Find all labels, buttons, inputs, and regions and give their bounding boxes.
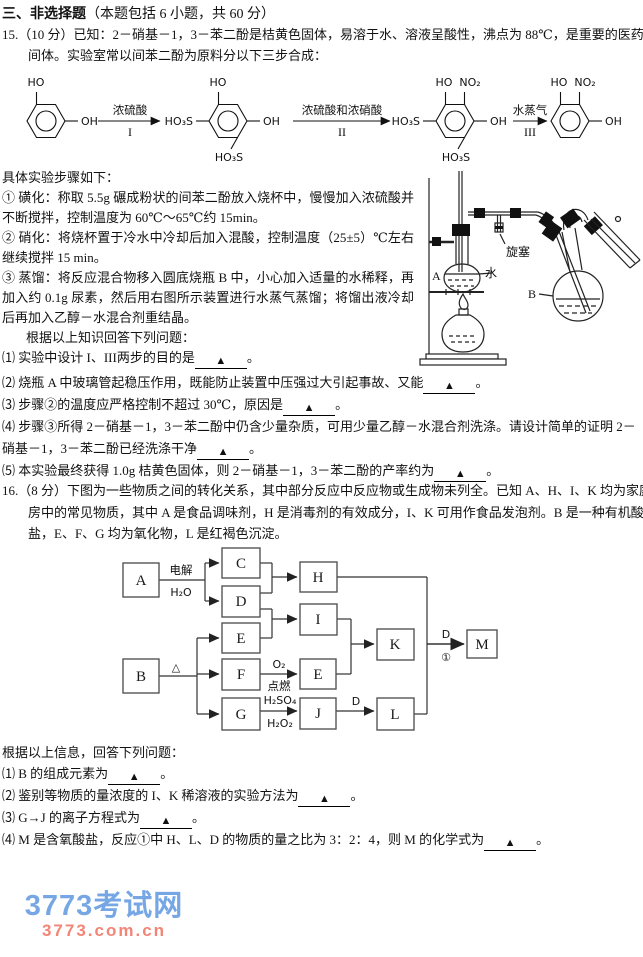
flow-box-i-label: I xyxy=(316,612,321,628)
question-label: ⑷ xyxy=(2,419,15,434)
transformation-flowchart: 电解 H₂O △ O₂ 点燃 H₂SO₄ H₂O₂ D D ① A B C D … xyxy=(0,543,643,743)
question-text: 烧瓶 A 中玻璃管起稳压作用，既能防止装置中压强过大引起事故、又能 xyxy=(18,375,423,390)
question-text: 步骤②的温度应严格控制不超过 30℃，原因是 xyxy=(18,397,283,412)
apparatus-figure: A 水 B 旋塞 xyxy=(418,168,641,368)
answer-blank: ▲ xyxy=(423,378,475,394)
apparatus-label-water: 水 xyxy=(485,266,497,280)
edge-label-ignite: 点燃 xyxy=(268,679,291,693)
question-text: 本实验最终获得 1.0g 桔黄色固体，则 2－硝基－1，3－苯二酚的产率约为 xyxy=(18,463,434,478)
q16-question-3: ⑶ G→J 的离子方程式为▲。 xyxy=(2,807,640,829)
alcohol-lamp xyxy=(442,294,484,352)
question-suffix: 。 xyxy=(247,350,260,365)
benzene-structure-1: HO OH xyxy=(27,76,98,138)
flow-box-e2: E xyxy=(300,659,336,689)
answer-blank: ▲ xyxy=(195,353,247,369)
watermark-logo: 3773考试网 xyxy=(14,891,194,921)
question-label: ⑵ xyxy=(2,375,15,390)
reaction-arrow-1: 浓硫酸 I xyxy=(98,103,160,139)
flow-box-l-label: L xyxy=(390,707,399,723)
q16-questions: 根据以上信息，回答下列问题： ⑴ B 的组成元素为▲。 ⑵ 鉴别等物质的量浓度的… xyxy=(2,742,640,851)
flow-box-g-label: G xyxy=(236,707,247,723)
substituent-no2: NO₂ xyxy=(459,76,480,89)
substituent-ho3s: HO₃S xyxy=(442,151,470,164)
question-text: B 的组成元素为 xyxy=(18,766,108,781)
arrow-3-reagent: 水蒸气 xyxy=(513,103,548,117)
arrow-2-step: II xyxy=(338,125,346,139)
flow-box-b: B xyxy=(123,659,159,693)
section-heading: 三、非选择题（本题包括 6 小题，共 60 分） xyxy=(2,3,632,23)
blank-triangle: ▲ xyxy=(444,380,455,392)
answer-blank: ▲ xyxy=(197,444,249,460)
edge-label-d-jl: D xyxy=(352,695,360,708)
flow-box-c-label: C xyxy=(236,556,246,572)
q15-questions: ⑵ 烧瓶 A 中玻璃管起稳压作用，既能防止装置中压强过大引起事故、又能▲。 ⑶ … xyxy=(2,372,640,482)
question-suffix: 。 xyxy=(335,397,348,412)
edge-label-electrolysis: 电解 xyxy=(170,563,193,577)
distillation-apparatus: A 水 B 旋塞 xyxy=(418,168,641,368)
q16-intro: 16.（8 分）下图为一些物质之间的转化关系，其中部分反应中反应物或生成物未列全… xyxy=(2,480,643,545)
question-text: 鉴别等物质的量浓度的 I、K 稀溶液的实验方法为 xyxy=(18,788,298,803)
edge-label-o2: O₂ xyxy=(272,658,285,671)
substituent-ho3s: HO₃S xyxy=(215,151,243,164)
watermark-url: 3773.com.cn xyxy=(14,921,194,941)
site-watermark: 3773考试网 3773.com.cn xyxy=(14,891,194,941)
blank-triangle: ▲ xyxy=(129,771,140,783)
arrow-2-reagent: 浓硫酸和浓硝酸 xyxy=(302,103,383,117)
substituent-oh: OH xyxy=(490,115,507,128)
section-heading-rest: （本题包括 6 小题，共 60 分） xyxy=(86,7,275,22)
flow-box-c: C xyxy=(222,548,260,578)
benzene-structure-2: HO OH HO₃S HO₃S xyxy=(165,76,280,164)
blank-triangle: ▲ xyxy=(505,837,516,849)
question-label: ⑶ xyxy=(2,810,15,825)
flow-box-d-label: D xyxy=(236,594,247,610)
question-suffix: 。 xyxy=(486,463,499,478)
flow-box-a: A xyxy=(123,563,159,597)
question-label: ⑴ xyxy=(2,350,15,365)
answer-blank: ▲ xyxy=(283,400,335,416)
apparatus-label-stopcock: 旋塞 xyxy=(506,244,530,259)
blank-triangle: ▲ xyxy=(455,468,466,480)
flow-box-f: F xyxy=(222,659,260,690)
q15-question-3: ⑶ 步骤②的温度应严格控制不超过 30℃，原因是▲。 xyxy=(2,394,640,416)
answer-blank: ▲ xyxy=(108,769,160,785)
edge-label-h2o2: H₂O₂ xyxy=(267,717,293,730)
substituent-ho: HO xyxy=(28,76,45,89)
flow-box-e2-label: E xyxy=(313,667,322,683)
q16-answer-prompt: 根据以上信息，回答下列问题： xyxy=(2,742,640,763)
substituent-ho3s: HO₃S xyxy=(165,115,193,128)
question-text: M 是含氧酸盐，反应①中 H、L、D 的物质的量之比为 3：2：4，则 M 的化… xyxy=(18,832,484,847)
q15-intro: 15.（10 分）已知：2－硝基－1，3－苯二酚是桔黄色固体，易溶于水、溶液呈酸… xyxy=(2,24,643,66)
blank-triangle: ▲ xyxy=(161,815,172,827)
flask-a xyxy=(444,171,480,292)
benzene-structure-3: HO NO₂ OH HO₃S HO₃S xyxy=(392,76,507,164)
answer-blank: ▲ xyxy=(484,835,536,851)
flow-box-e1: E xyxy=(222,623,260,653)
flow-box-h: H xyxy=(300,562,337,592)
flow-box-b-label: B xyxy=(136,669,146,685)
flow-box-h-label: H xyxy=(313,570,324,586)
edge-label-reaction-1: ① xyxy=(441,651,451,664)
blank-triangle: ▲ xyxy=(304,402,315,414)
edge-label-h2so4: H₂SO₄ xyxy=(264,694,297,707)
reaction-arrow-3: 水蒸气 III xyxy=(513,103,548,139)
flow-box-m: M xyxy=(467,630,497,658)
question-suffix: 。 xyxy=(350,788,363,803)
flow-box-j-label: J xyxy=(315,706,321,722)
question-suffix: 。 xyxy=(192,810,205,825)
q15-steps-region: A 水 B 旋塞 具体实验步骤如下： ① 磺化：称取 5.5g 碾成粉状的间苯二… xyxy=(2,168,641,369)
flow-box-e1-label: E xyxy=(236,631,245,647)
question-suffix: 。 xyxy=(160,766,173,781)
answer-blank: ▲ xyxy=(140,813,192,829)
q16-question-2: ⑵ 鉴别等物质的量浓度的 I、K 稀溶液的实验方法为▲。 xyxy=(2,785,640,807)
flow-box-f-label: F xyxy=(237,667,245,683)
apparatus-label-a: A xyxy=(432,269,441,283)
flow-box-k: K xyxy=(377,629,414,660)
question-label: ⑵ xyxy=(2,788,15,803)
substituent-ho: HO xyxy=(551,76,568,89)
blank-triangle: ▲ xyxy=(319,793,330,805)
substituent-oh: OH xyxy=(263,115,280,128)
flow-box-j: J xyxy=(300,698,336,729)
flow-box-l: L xyxy=(377,698,414,730)
substituent-ho3s: HO₃S xyxy=(392,115,420,128)
substituent-oh: OH xyxy=(81,115,98,128)
edge-label-h2o: H₂O xyxy=(170,586,192,599)
condenser xyxy=(542,208,640,268)
q15-question-4: ⑷ 步骤③所得 2－硝基－1，3－苯二酚中仍含少量杂质，可用少量乙醇－水混合剂洗… xyxy=(2,416,640,460)
edge-label-d-m: D xyxy=(442,628,450,641)
question-suffix: 。 xyxy=(249,441,262,456)
substituent-ho: HO xyxy=(436,76,453,89)
q15-question-5: ⑸ 本实验最终获得 1.0g 桔黄色固体，则 2－硝基－1，3－苯二酚的产率约为… xyxy=(2,460,640,482)
apparatus-label-b: B xyxy=(528,287,536,301)
benzene-structure-4: HO NO₂ OH xyxy=(551,76,622,138)
flow-box-k-label: K xyxy=(390,637,401,653)
substituent-ho: HO xyxy=(210,76,227,89)
arrow-1-step: I xyxy=(128,125,132,139)
blank-triangle: ▲ xyxy=(215,355,226,367)
question-suffix: 。 xyxy=(536,832,549,847)
flow-box-a-label: A xyxy=(136,573,147,589)
exam-page: 三、非选择题（本题包括 6 小题，共 60 分） 15.（10 分）已知：2－硝… xyxy=(0,0,643,957)
question-text: G→J 的离子方程式为 xyxy=(18,810,140,825)
question-text: 步骤③所得 2－硝基－1，3－苯二酚中仍含少量杂质，可用少量乙醇－水混合剂洗涤。… xyxy=(2,419,636,456)
arrow-3-step: III xyxy=(524,125,536,139)
flow-box-m-label: M xyxy=(475,637,488,653)
q16-question-4: ⑷ M 是含氧酸盐，反应①中 H、L、D 的物质的量之比为 3：2：4，则 M … xyxy=(2,829,640,851)
q16-question-1: ⑴ B 的组成元素为▲。 xyxy=(2,763,640,785)
reaction-arrow-2: 浓硫酸和浓硝酸 II xyxy=(293,103,390,139)
question-label: ⑷ xyxy=(2,832,15,847)
flow-box-g: G xyxy=(222,698,260,730)
delivery-tube xyxy=(468,208,538,244)
question-suffix: 。 xyxy=(475,375,488,390)
question-label: ⑴ xyxy=(2,766,15,781)
question-label: ⑸ xyxy=(2,463,15,478)
section-heading-bold: 三、非选择题 xyxy=(2,7,86,22)
flask-b xyxy=(553,228,603,321)
question-text: 实验中设计 I、III两步的目的是 xyxy=(18,350,195,365)
flow-box-i: I xyxy=(300,604,337,635)
blank-triangle: ▲ xyxy=(218,446,229,458)
reaction-scheme: HO OH 浓硫酸 I HO OH HO₃S HO₃S xyxy=(0,66,643,168)
flow-box-d: D xyxy=(222,586,260,617)
arrow-1-reagent: 浓硫酸 xyxy=(113,103,148,117)
question-label: ⑶ xyxy=(2,397,15,412)
edge-label-heat: △ xyxy=(172,661,181,674)
substituent-no2: NO₂ xyxy=(574,76,595,89)
q15-question-2: ⑵ 烧瓶 A 中玻璃管起稳压作用，既能防止装置中压强过大引起事故、又能▲。 xyxy=(2,372,640,394)
answer-blank: ▲ xyxy=(298,791,350,807)
substituent-oh: OH xyxy=(605,115,622,128)
